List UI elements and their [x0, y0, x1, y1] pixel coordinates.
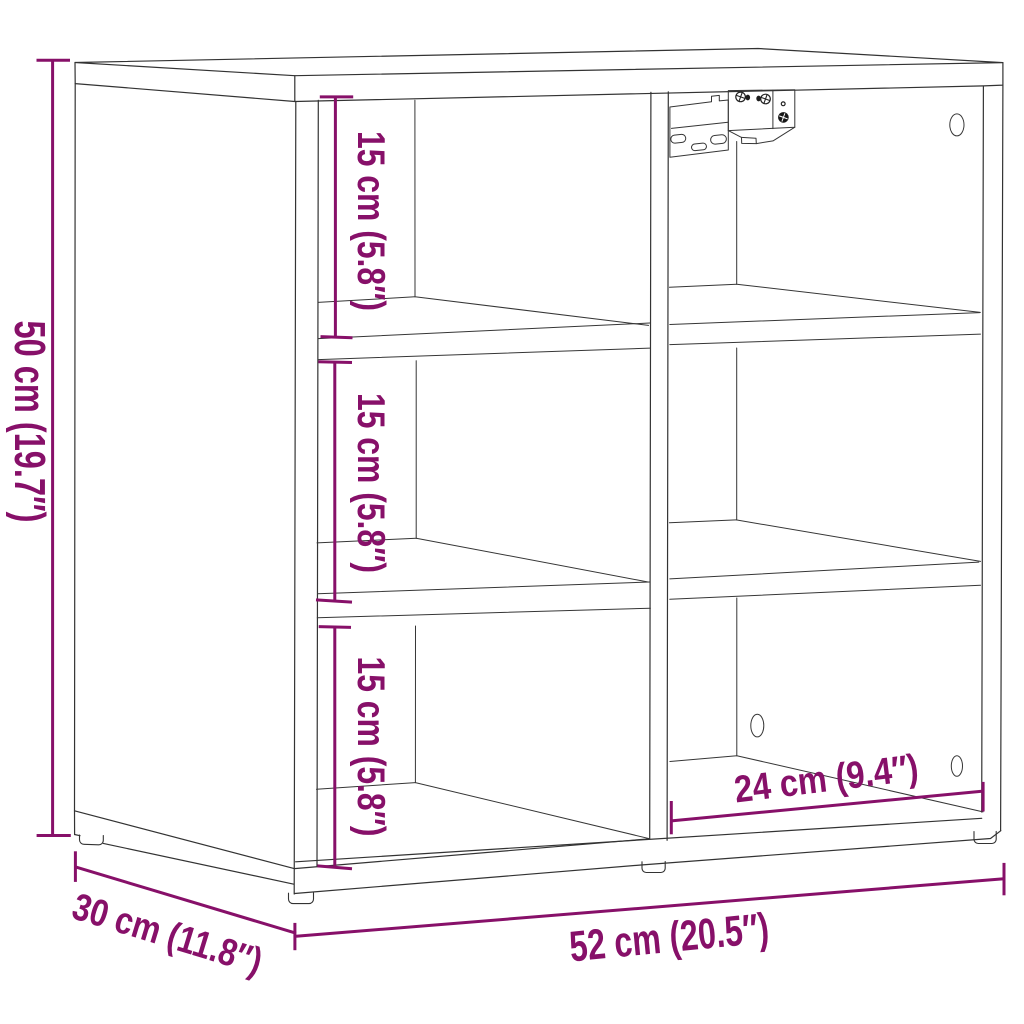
svg-text:15 cm (5.8″): 15 cm (5.8″) — [349, 393, 392, 573]
svg-text:50 cm (19.7″): 50 cm (19.7″) — [5, 321, 54, 523]
svg-text:15 cm (5.8″): 15 cm (5.8″) — [349, 657, 392, 837]
svg-text:15 cm (5.8″): 15 cm (5.8″) — [349, 131, 392, 311]
